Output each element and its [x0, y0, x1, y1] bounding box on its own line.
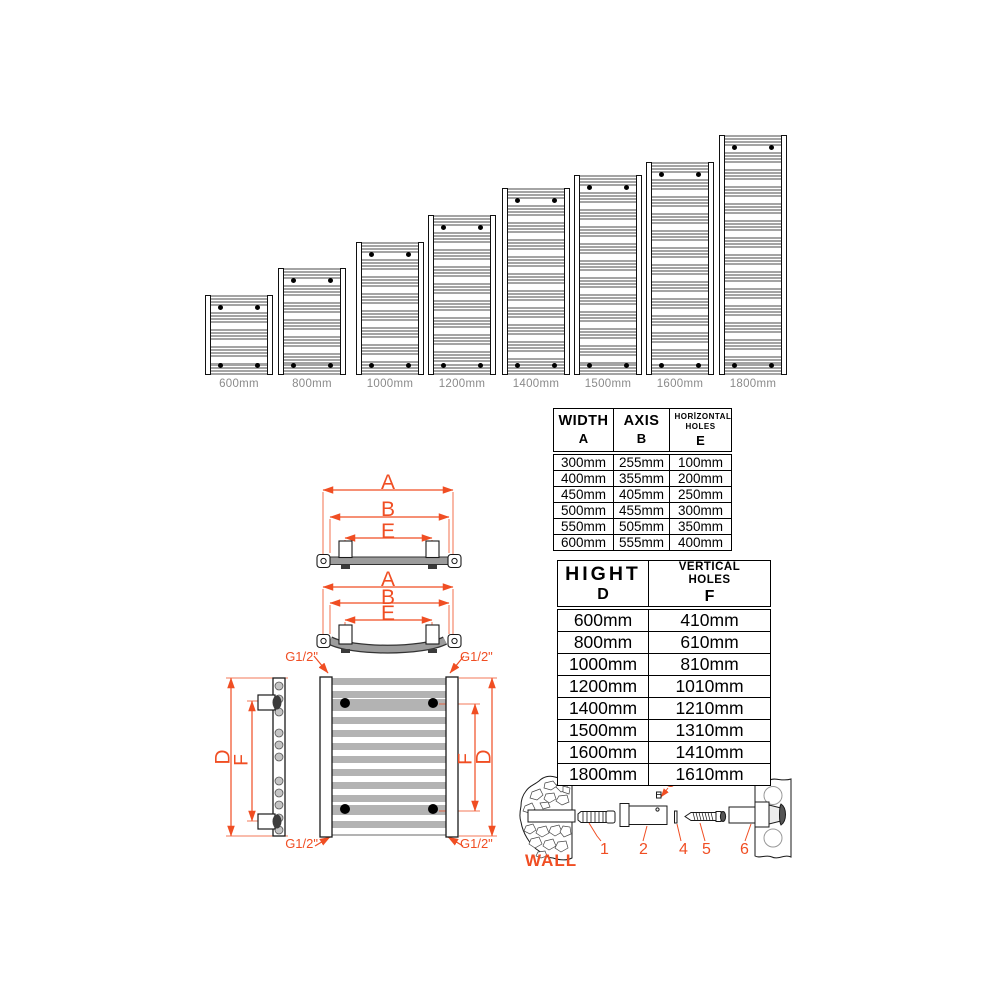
dim-label-E-straight: E [381, 521, 395, 542]
front-view-bar [332, 699, 446, 706]
spec-value: 350mm [670, 519, 732, 535]
dim-label-D-side: D [213, 749, 234, 764]
spec-value: 1210mm [649, 698, 771, 720]
mount-dot [732, 363, 737, 368]
radiator-height-label: 1800mm [709, 378, 797, 390]
mount-dot [218, 363, 223, 368]
dim-label-F-side: F [233, 754, 252, 766]
spec-value: 600mm [558, 608, 649, 632]
spec-sheet: 600mm800mm1000mm1200mm1400mm1500mm1600mm… [0, 0, 1000, 1000]
part-number-5: 5 [702, 842, 711, 858]
dim-label-D-front: D [474, 749, 495, 764]
spec-value: 810mm [649, 654, 771, 676]
mount-dot [515, 363, 520, 368]
radiator-bars [580, 175, 636, 375]
radiator-bars [284, 268, 340, 375]
mount-dot [369, 363, 374, 368]
radiator-1600mm: 1600mm [646, 162, 714, 375]
mount-dot [587, 363, 592, 368]
radiator-side-rail [418, 242, 424, 375]
spec-row: 300mm255mm100mm [554, 453, 732, 471]
column-header: VERTICAL HOLESF [649, 561, 771, 609]
mount-dot [624, 185, 629, 190]
part-number-1: 1 [600, 842, 609, 858]
spec-value: 1410mm [649, 742, 771, 764]
column-header: HORİZONTAL HOLESE [670, 409, 732, 454]
mount-dot [515, 198, 520, 203]
radiator-1200mm: 1200mm [428, 215, 496, 375]
spec-value: 600mm [554, 535, 614, 551]
mount-dot [552, 363, 557, 368]
spec-value: 1500mm [558, 720, 649, 742]
spec-row: 600mm410mm [558, 608, 771, 632]
radiator-1400mm: 1400mm [502, 188, 570, 375]
spec-row: 1000mm810mm [558, 654, 771, 676]
radiator-800mm: 800mm [278, 268, 346, 375]
radiator-side-rail [490, 215, 496, 375]
spec-value: 455mm [614, 503, 670, 519]
pipe-thread-label-bottom-left: G1/2" [268, 837, 318, 850]
mount-dot [659, 172, 664, 177]
spec-value: 800mm [558, 632, 649, 654]
spec-value: 100mm [670, 453, 732, 471]
spec-row: 550mm505mm350mm [554, 519, 732, 535]
mount-dot [696, 172, 701, 177]
mount-dot [552, 198, 557, 203]
radiator-height-label: 800mm [268, 378, 356, 390]
mount-dot [769, 145, 774, 150]
spec-value: 200mm [670, 471, 732, 487]
column-header: HIGHTD [558, 561, 649, 609]
radiator-600mm: 600mm [205, 295, 273, 375]
spec-row: 1400mm1210mm [558, 698, 771, 720]
width-spec-table: WIDTHAAXISBHORİZONTAL HOLESE300mm255mm10… [553, 408, 732, 551]
radiator-side-rail [708, 162, 714, 375]
spec-value: 550mm [554, 519, 614, 535]
radiator-bars [508, 188, 564, 375]
dim-label-A-straight: A [381, 472, 395, 493]
front-view-bar [332, 805, 446, 812]
mount-dot [587, 185, 592, 190]
mount-dot [659, 363, 664, 368]
spec-value: 1010mm [649, 676, 771, 698]
mount-dot [478, 363, 483, 368]
spec-value: 1200mm [558, 676, 649, 698]
mount-dot [769, 363, 774, 368]
radiator-bars [434, 215, 490, 375]
radiator-side-rail [781, 135, 787, 375]
spec-value: 300mm [670, 503, 732, 519]
mount-dot [696, 363, 701, 368]
radiator-bars [652, 162, 708, 375]
mount-dot [478, 225, 483, 230]
column-header: AXISB [614, 409, 670, 454]
mount-dot [369, 252, 374, 257]
spec-value: 405mm [614, 487, 670, 503]
spec-value: 400mm [554, 471, 614, 487]
spec-value: 450mm [554, 487, 614, 503]
mount-dot [291, 278, 296, 283]
spec-row: 500mm455mm300mm [554, 503, 732, 519]
mount-dot [732, 145, 737, 150]
mount-dot [441, 363, 446, 368]
spec-value: 300mm [554, 453, 614, 471]
mount-dot [255, 305, 260, 310]
radiator-side-rail [564, 188, 570, 375]
spec-value: 505mm [614, 519, 670, 535]
radiator-side-rail [636, 175, 642, 375]
mount-dot [328, 363, 333, 368]
dim-label-E-curved: E [381, 603, 395, 624]
spec-row: 1500mm1310mm [558, 720, 771, 742]
part-number-6: 6 [740, 842, 749, 858]
spec-row: 600mm555mm400mm [554, 535, 732, 551]
mount-dot [441, 225, 446, 230]
spec-row: 800mm610mm [558, 632, 771, 654]
spec-value: 1400mm [558, 698, 649, 720]
mount-dot [291, 363, 296, 368]
radiator-1800mm: 1800mm [719, 135, 787, 375]
mount-dot [218, 305, 223, 310]
wall-label: WALL [525, 851, 577, 871]
mount-dot [328, 278, 333, 283]
part-number-4: 4 [679, 842, 688, 858]
pipe-thread-label-bottom-right: G1/2" [460, 837, 510, 850]
spec-value: 1800mm [558, 764, 649, 786]
spec-value: 555mm [614, 535, 670, 551]
radiator-bars [362, 242, 418, 375]
spec-value: 1610mm [649, 764, 771, 786]
spec-value: 400mm [670, 535, 732, 551]
radiator-bars [725, 135, 781, 375]
mount-dot [624, 363, 629, 368]
spec-value: 1310mm [649, 720, 771, 742]
radiator-height-series: 600mm800mm1000mm1200mm1400mm1500mm1600mm… [0, 0, 1000, 1000]
pipe-thread-label-top-left: G1/2" [268, 650, 318, 663]
spec-row: 450mm405mm250mm [554, 487, 732, 503]
radiator-side-rail [340, 268, 346, 375]
column-header: WIDTHA [554, 409, 614, 454]
mount-dot [406, 363, 411, 368]
spec-row: 1800mm1610mm [558, 764, 771, 786]
dim-label-B-straight: B [381, 499, 395, 520]
radiator-1000mm: 1000mm [356, 242, 424, 375]
spec-row: 400mm355mm200mm [554, 471, 732, 487]
spec-value: 1600mm [558, 742, 649, 764]
radiator-side-rail [267, 295, 273, 375]
pipe-thread-label-top-right: G1/2" [460, 650, 510, 663]
mount-dot [406, 252, 411, 257]
spec-row: 1600mm1410mm [558, 742, 771, 764]
spec-value: 355mm [614, 471, 670, 487]
spec-value: 255mm [614, 453, 670, 471]
spec-value: 500mm [554, 503, 614, 519]
radiator-1500mm: 1500mm [574, 175, 642, 375]
spec-value: 1000mm [558, 654, 649, 676]
spec-value: 410mm [649, 608, 771, 632]
part-number-2: 2 [639, 842, 648, 858]
spec-row: 1200mm1010mm [558, 676, 771, 698]
height-spec-table: HIGHTDVERTICAL HOLESF600mm410mm800mm610m… [557, 560, 771, 786]
mount-dot [255, 363, 260, 368]
spec-value: 250mm [670, 487, 732, 503]
spec-value: 610mm [649, 632, 771, 654]
